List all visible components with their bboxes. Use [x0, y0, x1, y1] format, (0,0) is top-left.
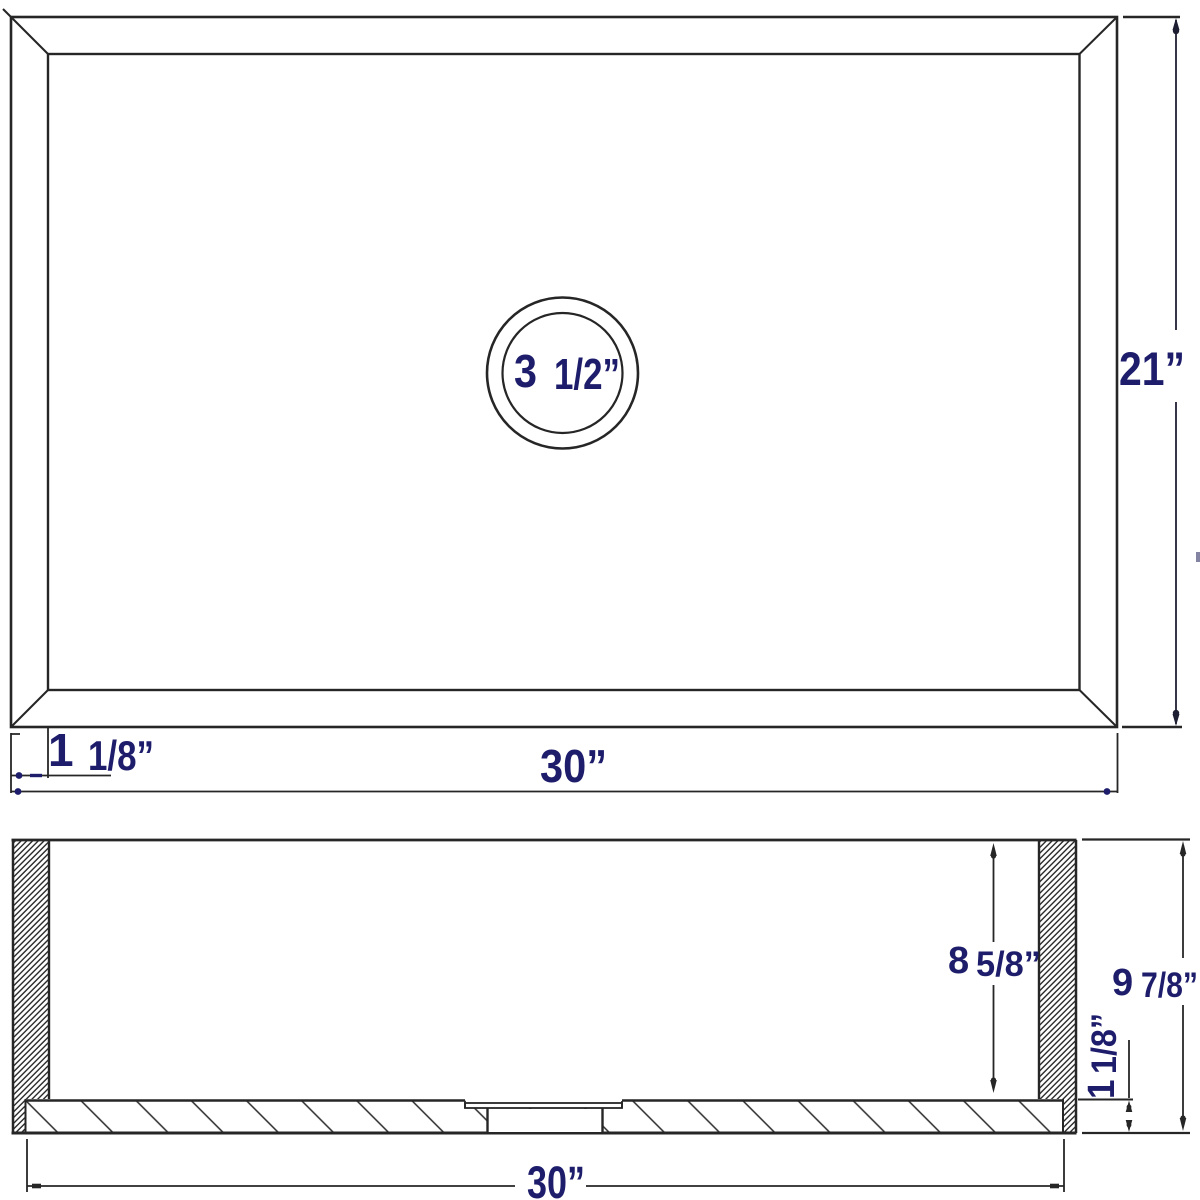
svg-text:3: 3 — [514, 345, 537, 397]
svg-text:5/8”: 5/8” — [976, 945, 1041, 984]
svg-text:7/8”: 7/8” — [1141, 966, 1198, 1005]
svg-text:1: 1 — [48, 724, 74, 776]
svg-text:11/8”: 11/8” — [1081, 1013, 1124, 1099]
svg-text:1/8”: 1/8” — [88, 732, 154, 779]
svg-text:8: 8 — [948, 940, 969, 982]
svg-text:9: 9 — [1112, 962, 1133, 1004]
svg-text:1/2”: 1/2” — [554, 350, 620, 399]
svg-text:30”: 30” — [540, 740, 607, 792]
svg-text:30”: 30” — [527, 1157, 585, 1200]
svg-text:21”: 21” — [1119, 342, 1185, 395]
